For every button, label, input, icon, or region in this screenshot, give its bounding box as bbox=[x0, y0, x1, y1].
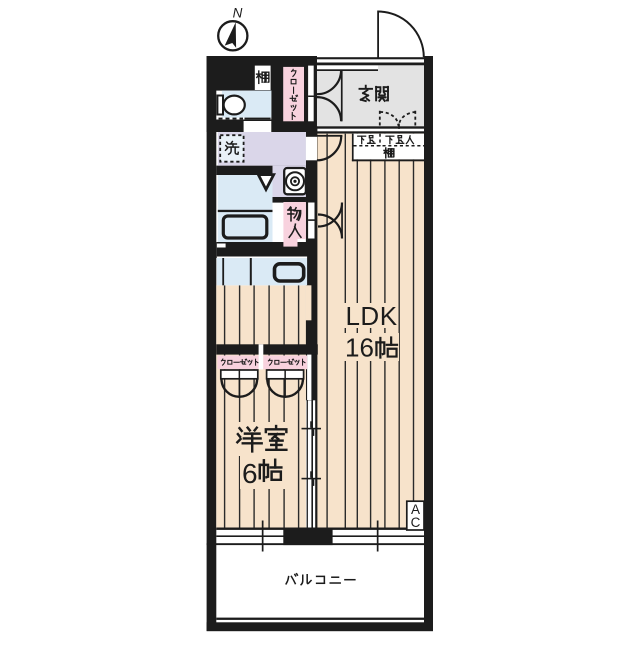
svg-text:C: C bbox=[411, 515, 421, 530]
svg-text:16: 16 bbox=[345, 332, 374, 362]
svg-text:6: 6 bbox=[242, 458, 258, 489]
svg-text:N: N bbox=[233, 6, 243, 21]
svg-text:LDK: LDK bbox=[345, 301, 397, 331]
